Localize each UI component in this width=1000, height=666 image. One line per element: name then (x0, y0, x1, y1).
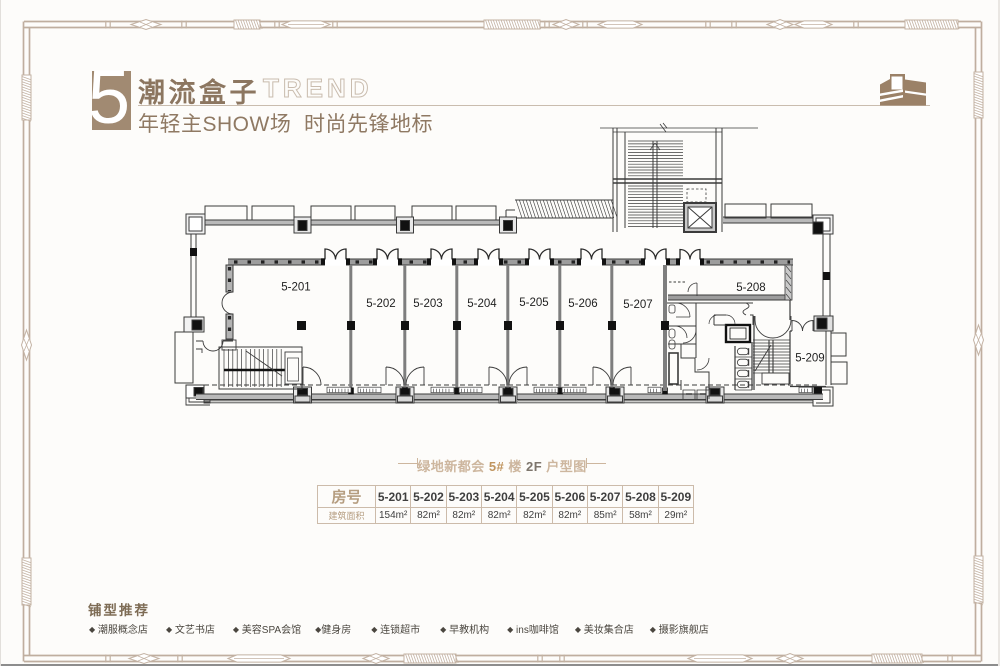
svg-text:5-201: 5-201 (281, 282, 310, 294)
svg-text:5-207: 5-207 (623, 299, 652, 311)
svg-text:5-205: 5-205 (519, 297, 548, 309)
svg-text:5-204: 5-204 (467, 298, 497, 310)
svg-text:5-209: 5-209 (795, 353, 824, 365)
svg-text:5-202: 5-202 (366, 298, 395, 310)
svg-text:5-206: 5-206 (568, 298, 597, 310)
svg-text:5-203: 5-203 (413, 298, 442, 310)
svg-text:5-208: 5-208 (736, 282, 765, 294)
